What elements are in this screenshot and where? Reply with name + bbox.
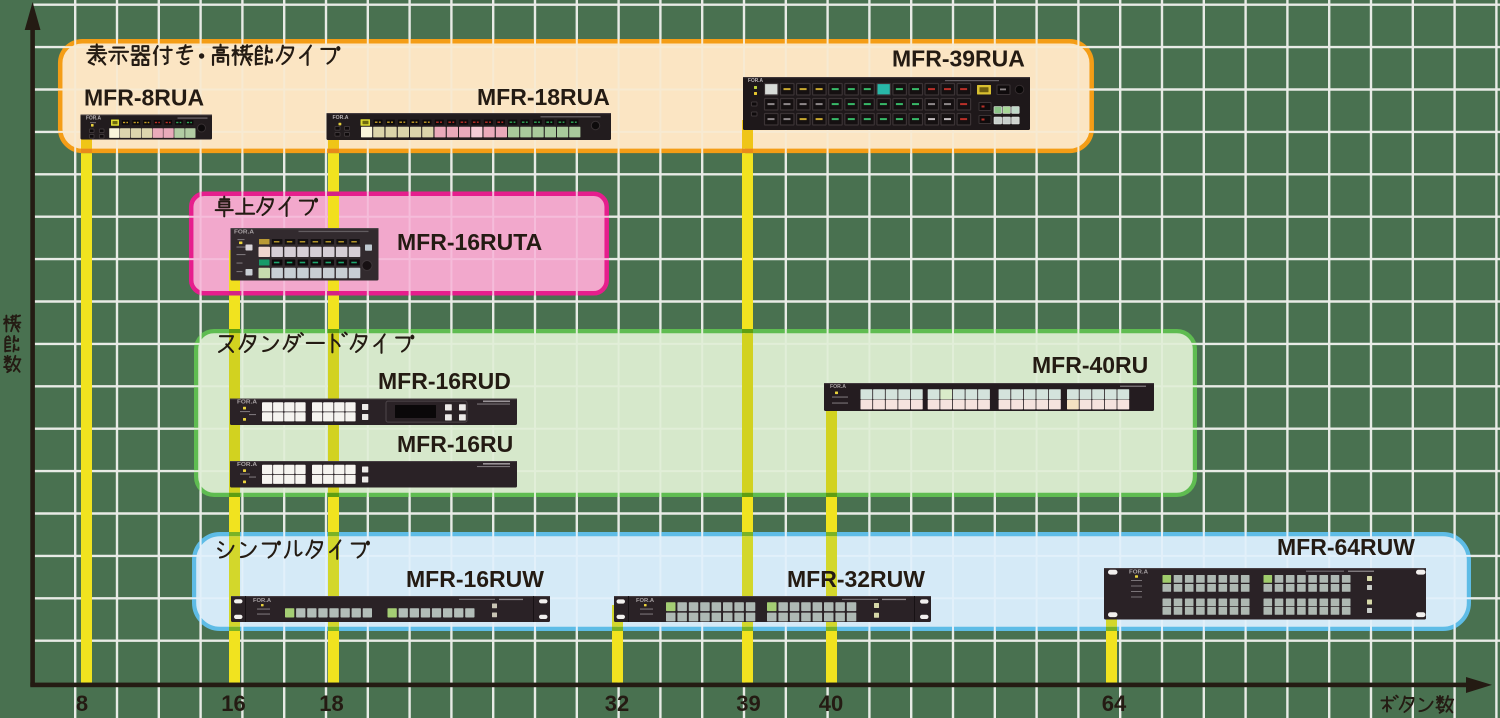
svg-text:FOR.A: FOR.A	[636, 598, 654, 604]
svg-text:MFR-64RUW: MFR-64RUW	[1277, 534, 1415, 560]
svg-text:FOR.A: FOR.A	[1129, 569, 1148, 575]
svg-text:40: 40	[819, 691, 843, 716]
svg-text:FOR.A: FOR.A	[830, 384, 846, 390]
svg-text:64: 64	[1102, 691, 1127, 716]
svg-text:MFR-8RUA: MFR-8RUA	[84, 85, 204, 111]
svg-text:MFR-16RUD: MFR-16RUD	[378, 368, 511, 394]
svg-text:MFR-18RUA: MFR-18RUA	[477, 84, 610, 110]
svg-text:16: 16	[221, 691, 245, 716]
svg-text:MFR-40RU: MFR-40RU	[1032, 352, 1148, 378]
svg-text:MFR-16RUTA: MFR-16RUTA	[397, 229, 542, 255]
svg-text:FOR.A: FOR.A	[333, 115, 349, 121]
svg-text:32: 32	[605, 691, 629, 716]
svg-text:FOR.A: FOR.A	[748, 78, 763, 84]
svg-text:FOR.A: FOR.A	[86, 116, 101, 122]
svg-text:MFR-39RUA: MFR-39RUA	[892, 46, 1025, 72]
svg-text:18: 18	[319, 691, 343, 716]
svg-text:FOR.A: FOR.A	[237, 400, 257, 406]
svg-text:FOR.A: FOR.A	[237, 462, 257, 468]
svg-text:MFR-16RU: MFR-16RU	[397, 431, 513, 457]
svg-text:FOR.A: FOR.A	[234, 229, 254, 235]
svg-text:MFR-16RUW: MFR-16RUW	[406, 566, 544, 592]
svg-text:MFR-32RUW: MFR-32RUW	[787, 566, 925, 592]
svg-text:39: 39	[736, 691, 760, 716]
svg-text:8: 8	[76, 691, 88, 716]
svg-text:FOR.A: FOR.A	[253, 598, 271, 604]
